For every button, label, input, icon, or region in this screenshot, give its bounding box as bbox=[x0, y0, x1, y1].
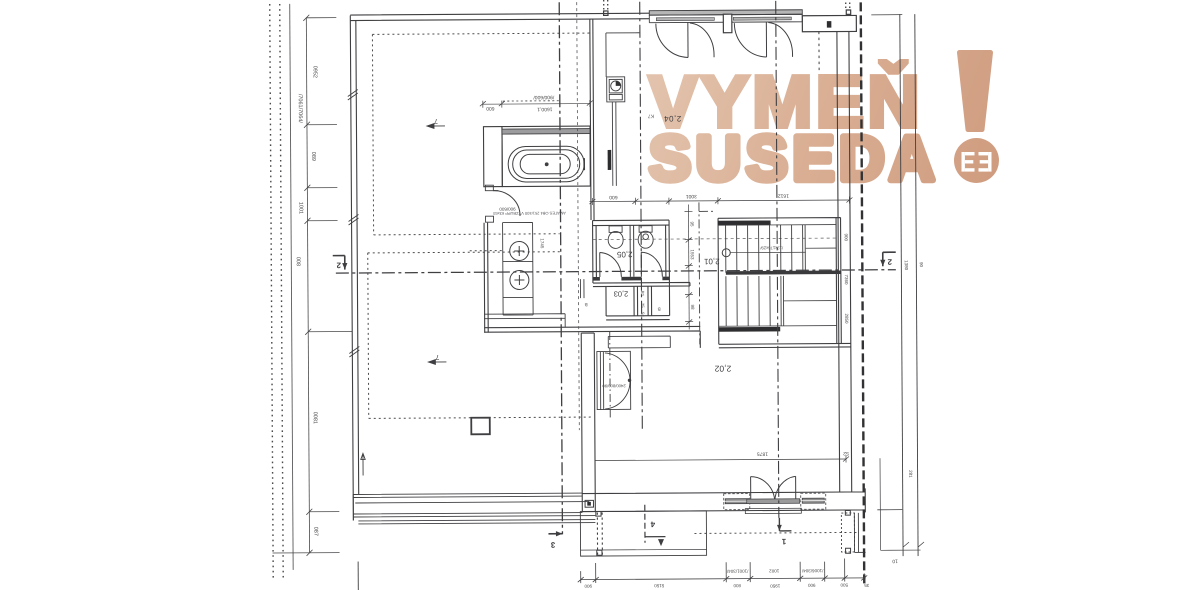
svg-text:B1: B1 bbox=[640, 291, 645, 297]
svg-text:600: 600 bbox=[486, 105, 495, 111]
svg-text:2: 2 bbox=[887, 257, 892, 266]
svg-text:900: 900 bbox=[844, 233, 849, 241]
svg-text:SUSEDA: SUSEDA bbox=[649, 124, 939, 194]
svg-text:1001: 1001 bbox=[297, 202, 303, 214]
svg-text:10: 10 bbox=[892, 558, 898, 564]
svg-text:3001: 3001 bbox=[686, 193, 697, 199]
svg-text:AMATES OB4 251/400 VYZBUPP 63x: AMATES OB4 251/400 VYZBUPP 63x63 bbox=[492, 211, 565, 216]
svg-text:900: 900 bbox=[584, 584, 592, 589]
svg-text:5150: 5150 bbox=[654, 583, 665, 588]
svg-text:3: 3 bbox=[550, 540, 555, 549]
svg-text:2,01: 2,01 bbox=[703, 257, 719, 266]
svg-text:1380: 1380 bbox=[904, 260, 909, 271]
svg-text:2400/800/90: 2400/800/90 bbox=[602, 383, 626, 388]
svg-text:B: B bbox=[585, 302, 588, 307]
svg-text:/900/600/: /900/600/ bbox=[533, 94, 554, 100]
svg-text:1: 1 bbox=[781, 537, 786, 546]
svg-text:2,02: 2,02 bbox=[714, 364, 731, 374]
svg-text:900: 900 bbox=[808, 583, 816, 588]
svg-text:95: 95 bbox=[690, 221, 695, 227]
svg-text:52: 52 bbox=[843, 450, 849, 456]
svg-text:/13x176x29/: /13x176x29/ bbox=[759, 245, 783, 250]
svg-text:2850: 2850 bbox=[844, 313, 849, 324]
svg-text:/1001/304/: /1001/304/ bbox=[726, 569, 748, 574]
svg-text:B: B bbox=[658, 307, 661, 312]
svg-text:900/600: 900/600 bbox=[499, 207, 516, 212]
svg-text:2: 2 bbox=[336, 261, 341, 270]
svg-text:2,03: 2,03 bbox=[614, 289, 629, 298]
svg-text:0081: 0081 bbox=[312, 412, 318, 424]
svg-text:1950: 1950 bbox=[770, 583, 781, 588]
svg-text:7360: 7360 bbox=[844, 274, 849, 285]
svg-text:087: 087 bbox=[312, 527, 318, 536]
svg-text:800: 800 bbox=[733, 583, 741, 588]
svg-text:1612: 1612 bbox=[778, 192, 789, 198]
svg-text:S1: S1 bbox=[640, 312, 645, 318]
svg-text:1745: 1745 bbox=[540, 238, 545, 249]
svg-text:1600,1: 1600,1 bbox=[537, 106, 553, 112]
svg-text:K7: K7 bbox=[648, 113, 654, 119]
svg-text:2,05: 2,05 bbox=[616, 250, 632, 259]
svg-text:7: 7 bbox=[435, 353, 439, 360]
svg-text:90: 90 bbox=[919, 262, 924, 268]
svg-text:98: 98 bbox=[690, 304, 695, 310]
svg-text:35: 35 bbox=[864, 583, 870, 588]
svg-text:0952: 0952 bbox=[312, 66, 318, 78]
svg-text:500: 500 bbox=[840, 582, 848, 587]
svg-text:/7061/7064/: /7061/7064/ bbox=[297, 94, 303, 124]
svg-text:089: 089 bbox=[310, 152, 316, 161]
svg-text:008: 008 bbox=[295, 257, 301, 266]
svg-text:281: 281 bbox=[908, 470, 913, 478]
svg-text:4: 4 bbox=[650, 520, 655, 529]
svg-text:/1006/304/: /1006/304/ bbox=[801, 568, 823, 573]
svg-text:1875: 1875 bbox=[757, 450, 768, 456]
svg-text:75: 75 bbox=[640, 303, 645, 309]
svg-text:600: 600 bbox=[609, 194, 618, 200]
svg-text:7: 7 bbox=[434, 117, 438, 124]
svg-text:2,04: 2,04 bbox=[664, 114, 682, 123]
svg-text:1002: 1002 bbox=[769, 568, 780, 573]
svg-text:1553: 1553 bbox=[690, 249, 695, 260]
